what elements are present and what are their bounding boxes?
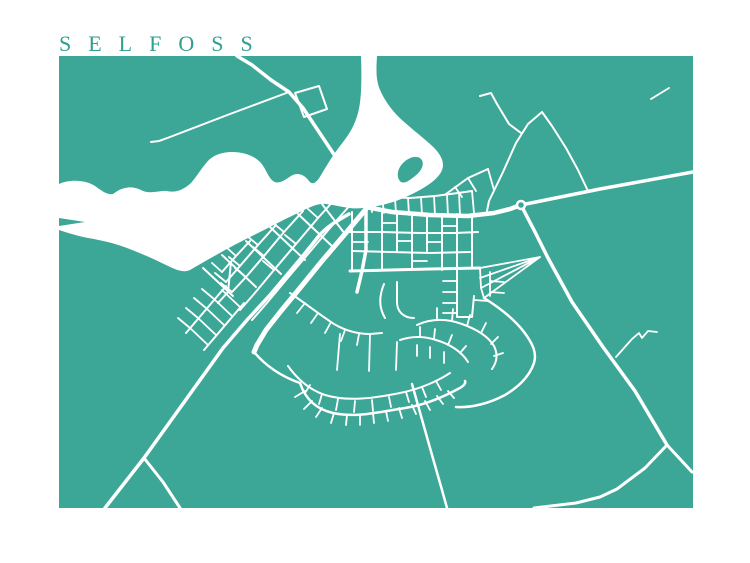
- map-poster: SELFOSS: [0, 0, 750, 563]
- map-canvas: [0, 0, 750, 563]
- map-layers: [59, 56, 693, 508]
- roundabout: [517, 201, 525, 209]
